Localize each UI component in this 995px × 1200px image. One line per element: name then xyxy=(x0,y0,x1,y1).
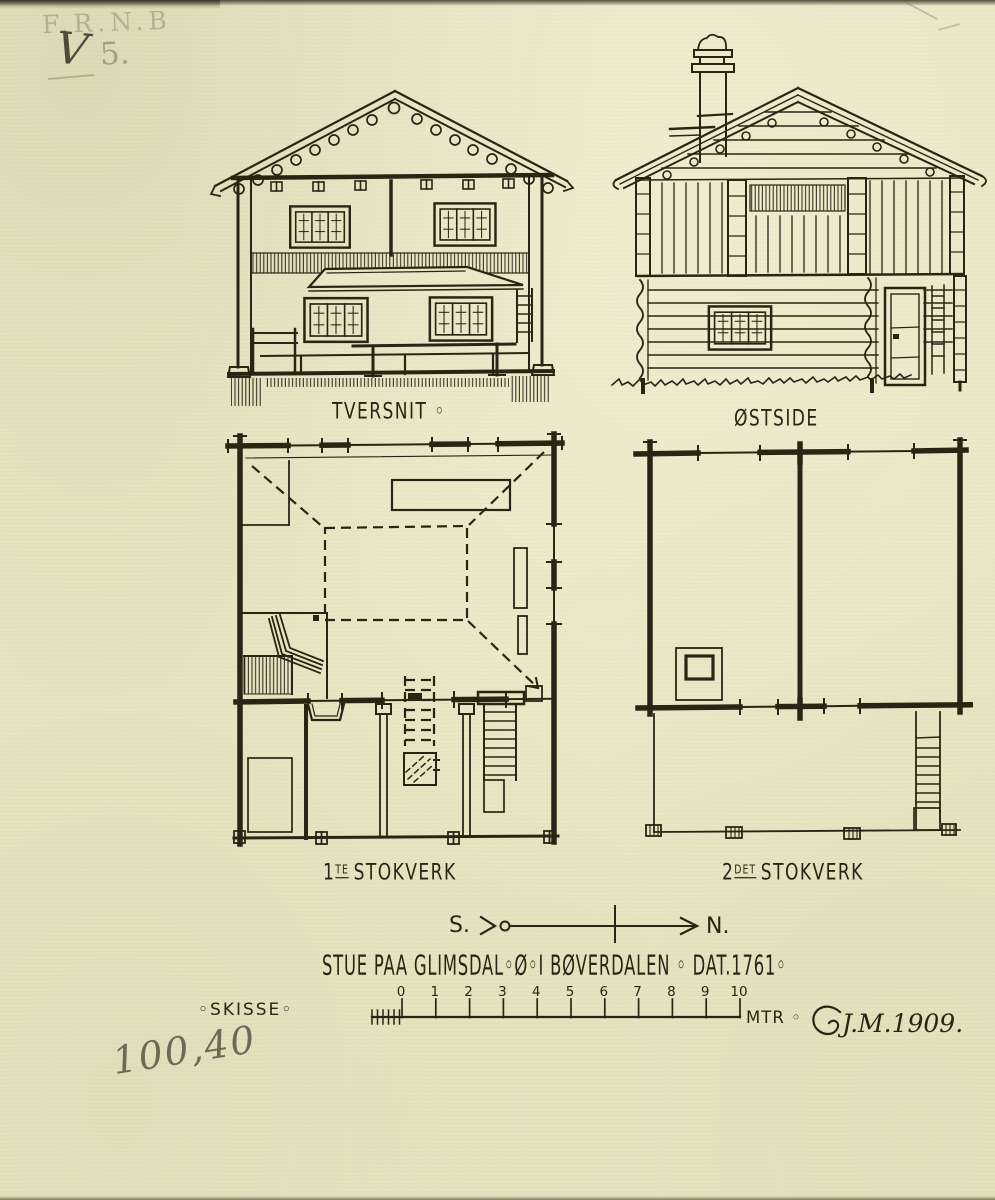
scale-bar-ticks: 012345678910 xyxy=(397,986,748,1018)
bench xyxy=(514,548,527,608)
north-arrow: S. N. xyxy=(443,900,738,944)
scale-bar: 012345678910 MTR ◦ xyxy=(366,986,826,1038)
scale-tick-label: 6 xyxy=(600,986,609,1000)
cross-section-drawing xyxy=(205,85,575,410)
portal-plank xyxy=(848,178,866,274)
stairs xyxy=(478,692,524,812)
gallery xyxy=(646,712,960,839)
sketch-sheet: F.R.N.B V 5. 100,40 xyxy=(0,0,995,1200)
loft-ladder-dashed xyxy=(405,676,434,746)
pencil-archive-number: 100,40 xyxy=(109,1017,259,1083)
log-lines xyxy=(648,290,952,368)
log-ends xyxy=(637,280,643,378)
roof xyxy=(613,88,986,189)
hearth xyxy=(242,613,327,698)
foundation-hatch xyxy=(265,378,509,387)
signature: J.M.1909. xyxy=(806,996,981,1048)
scale-tick-label: 5 xyxy=(566,986,575,1000)
scale-tick-label: 9 xyxy=(701,986,710,1000)
window xyxy=(435,203,496,245)
foundation-hatch xyxy=(511,376,551,402)
upper-storey xyxy=(636,176,964,276)
cupboard xyxy=(248,758,292,832)
scale-tick-label: 10 xyxy=(730,986,747,1000)
caption-east-side: ØSTSIDE xyxy=(734,406,823,427)
railing xyxy=(251,329,297,373)
portal-plank xyxy=(728,180,746,276)
scale-tick-label: 7 xyxy=(633,986,642,1000)
smoke-hood-dashed xyxy=(252,452,544,688)
drawing-title: STUE PAA GLIMSDAL◦Ø◦I BØVERDALEN ◦ DAT.1… xyxy=(322,950,918,974)
scale-tick-label: 8 xyxy=(667,986,676,1000)
door xyxy=(885,288,925,385)
scan-bottom-edge xyxy=(0,1196,995,1200)
porch-posts xyxy=(376,704,474,836)
table xyxy=(392,480,510,510)
drawing-subtitle: ◦SKISSE◦ xyxy=(198,1000,293,1020)
caption-first-storey: 1TESTOKVERK xyxy=(323,860,464,881)
compass-north-label: N. xyxy=(706,914,729,939)
pencil-page-number: 5. xyxy=(99,35,130,72)
first-floor-plan xyxy=(222,428,570,856)
stairs xyxy=(914,712,940,830)
stone-slab xyxy=(404,753,439,785)
lower-storey xyxy=(612,276,966,392)
bench xyxy=(518,616,527,654)
foundation-hatch xyxy=(231,378,261,406)
scale-tick-label: 3 xyxy=(498,986,507,1000)
window xyxy=(290,206,350,247)
scale-unit-label: MTR ◦ xyxy=(746,1008,802,1027)
signature-text: J.M.1909. xyxy=(837,1009,963,1038)
entrance-bay xyxy=(308,704,344,720)
window xyxy=(304,298,367,342)
caption-cross-section: TVERSNIT ◦ xyxy=(332,399,452,420)
east-elevation-drawing xyxy=(610,28,990,400)
scale-tick-label: 2 xyxy=(464,986,473,1000)
pencil-check-mark: V xyxy=(53,22,90,76)
window xyxy=(709,306,771,349)
gallery-hatch xyxy=(750,185,845,211)
log-ends xyxy=(865,278,871,376)
cross-section-structure xyxy=(228,175,554,406)
compass-south-label: S. xyxy=(449,913,470,938)
scale-tick-label: 0 xyxy=(397,986,406,1000)
chimney-plan xyxy=(676,648,722,700)
caption-second-storey: 2DETSTOKVERK xyxy=(722,860,871,881)
window xyxy=(430,297,492,340)
corner-board xyxy=(954,276,966,382)
scale-tick-label: 4 xyxy=(532,986,541,1000)
second-floor-plan xyxy=(628,432,973,857)
grass xyxy=(612,374,911,386)
scale-tick-label: 1 xyxy=(431,986,440,1000)
porch-front-wall xyxy=(234,831,558,844)
